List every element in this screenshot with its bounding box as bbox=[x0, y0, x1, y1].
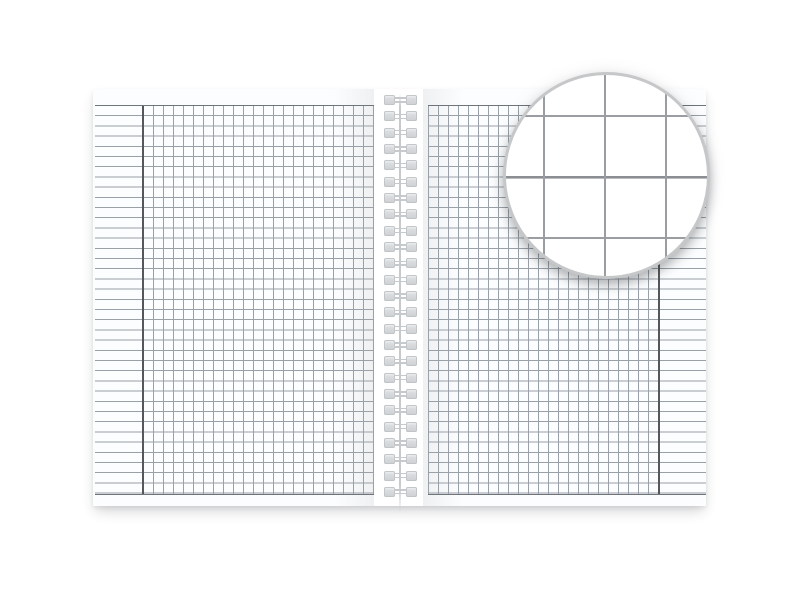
spiral-coil bbox=[384, 307, 417, 317]
spiral-coil bbox=[384, 340, 417, 350]
spiral-coil bbox=[384, 111, 417, 121]
coil-right-pad bbox=[406, 454, 417, 464]
spiral-coil bbox=[384, 160, 417, 170]
spiral-coil bbox=[384, 258, 417, 268]
spiral-coil bbox=[384, 487, 417, 497]
coil-right-pad bbox=[406, 471, 417, 481]
coil-right-pad bbox=[406, 340, 417, 350]
spiral-coil bbox=[384, 209, 417, 219]
spiral-coil bbox=[384, 373, 417, 383]
spiral-coil bbox=[384, 389, 417, 399]
spiral-coil bbox=[384, 405, 417, 415]
spiral-coil bbox=[384, 291, 417, 301]
coil-right-pad bbox=[406, 291, 417, 301]
magnifier-grid bbox=[506, 75, 707, 276]
left-page-margin-rules bbox=[95, 106, 144, 494]
coil-right-pad bbox=[406, 324, 417, 334]
coil-right-pad bbox=[406, 405, 417, 415]
spiral-coil bbox=[384, 242, 417, 252]
coil-right-pad bbox=[406, 193, 417, 203]
coil-right-pad bbox=[406, 258, 417, 268]
coil-right-pad bbox=[406, 389, 417, 399]
magnifier-circle bbox=[503, 72, 710, 279]
spiral-binding bbox=[384, 95, 417, 503]
spiral-coil bbox=[384, 128, 417, 138]
spiral-coil bbox=[384, 438, 417, 448]
page-background: { "scene": { "description": "Open spiral… bbox=[0, 0, 800, 600]
spiral-coil bbox=[384, 471, 417, 481]
coil-right-pad bbox=[406, 226, 417, 236]
left-page-grid bbox=[144, 106, 374, 494]
spiral-coil bbox=[384, 193, 417, 203]
spiral-coil bbox=[384, 226, 417, 236]
coil-right-pad bbox=[406, 209, 417, 219]
coil-right-pad bbox=[406, 144, 417, 154]
coil-right-pad bbox=[406, 438, 417, 448]
coil-right-pad bbox=[406, 373, 417, 383]
spiral-coil bbox=[384, 454, 417, 464]
coil-right-pad bbox=[406, 95, 417, 105]
spiral-coil bbox=[384, 356, 417, 366]
coil-right-pad bbox=[406, 487, 417, 497]
left-page-ruled-area bbox=[95, 105, 374, 495]
coil-right-pad bbox=[406, 128, 417, 138]
coil-right-pad bbox=[406, 275, 417, 285]
spiral-coil bbox=[384, 275, 417, 285]
left-page bbox=[93, 89, 374, 506]
spiral-coil bbox=[384, 422, 417, 432]
coil-right-pad bbox=[406, 160, 417, 170]
coil-right-pad bbox=[406, 422, 417, 432]
coil-right-pad bbox=[406, 356, 417, 366]
coil-right-pad bbox=[406, 111, 417, 121]
spiral-coil bbox=[384, 144, 417, 154]
coil-right-pad bbox=[406, 307, 417, 317]
coil-right-pad bbox=[406, 177, 417, 187]
coil-right-pad bbox=[406, 242, 417, 252]
spiral-coil bbox=[384, 177, 417, 187]
spiral-coil bbox=[384, 324, 417, 334]
spiral-coil bbox=[384, 95, 417, 105]
